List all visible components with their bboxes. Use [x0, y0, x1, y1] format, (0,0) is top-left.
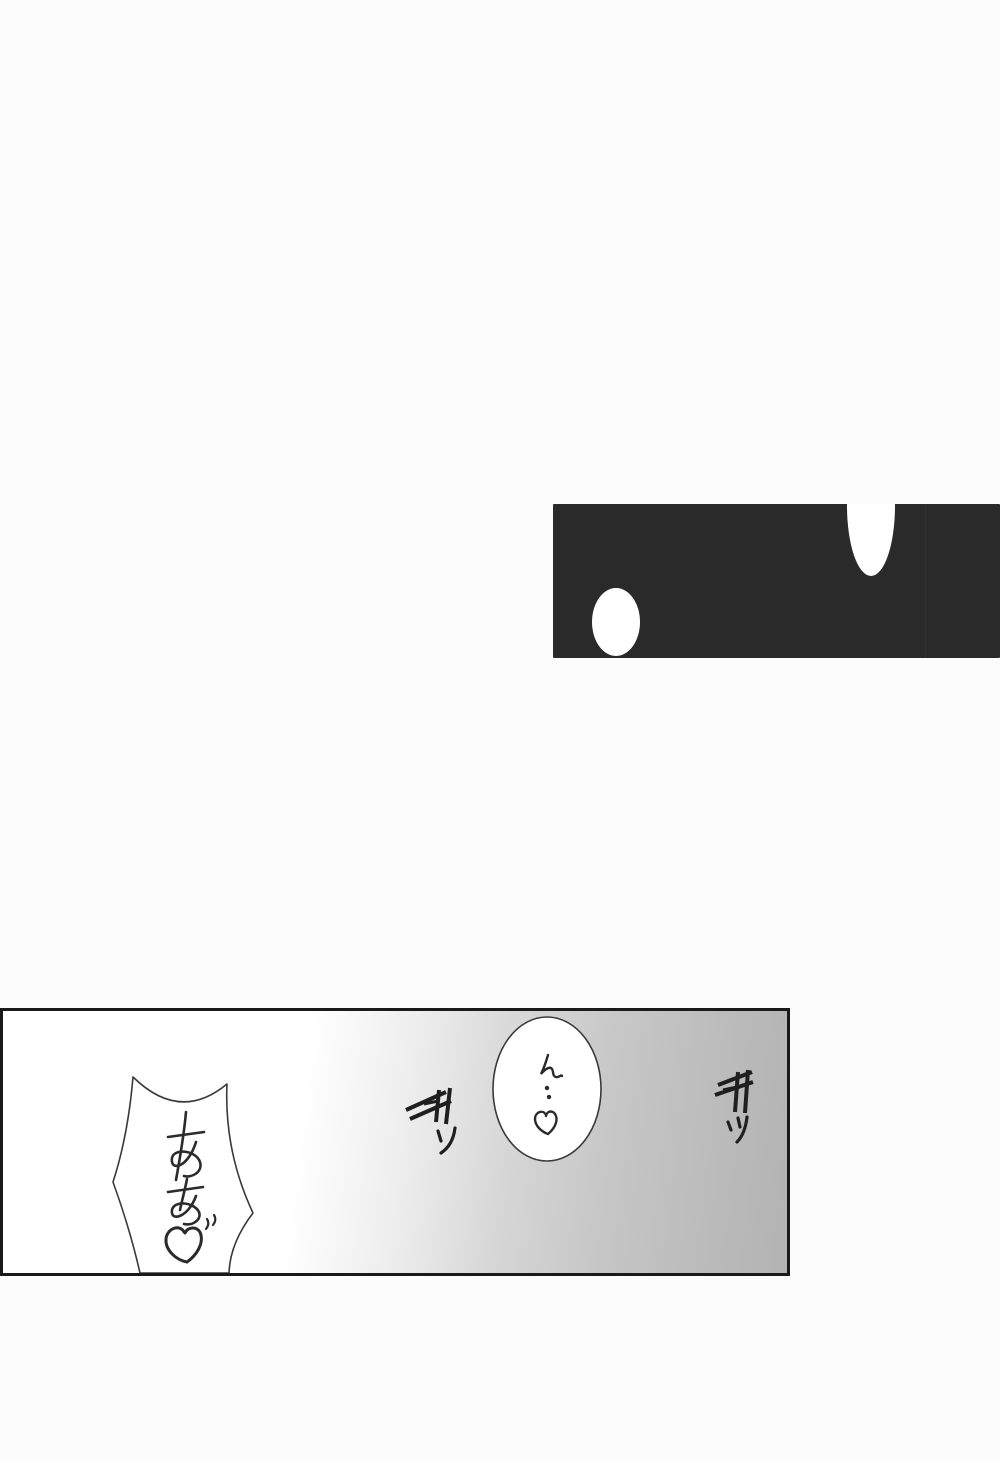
scream-bubble-outline [113, 1077, 253, 1273]
small-tsu-right [728, 1117, 747, 1142]
scream-bubble [113, 1077, 253, 1273]
moan-bubble-text: ん‥♡ [0, 0, 1, 1]
sfx-gi-left [406, 1088, 455, 1153]
scan-seam-line [925, 504, 926, 658]
sfx-right-text: ギッ [0, 0, 1, 1]
blank-bubble-left-oval [592, 588, 640, 656]
moan-bubble [493, 1017, 601, 1161]
top-black-panel [553, 504, 1000, 658]
scream-bubble-text: あぁ♡ [0, 0, 1, 1]
bottom-panel-art [3, 1011, 787, 1273]
sfx-left-text: ギッ [0, 0, 1, 1]
bottom-panel [0, 1008, 790, 1276]
blank-bubble-right-oval [847, 504, 895, 576]
sfx-gi-right [715, 1070, 753, 1142]
small-tsu-left [438, 1128, 455, 1153]
